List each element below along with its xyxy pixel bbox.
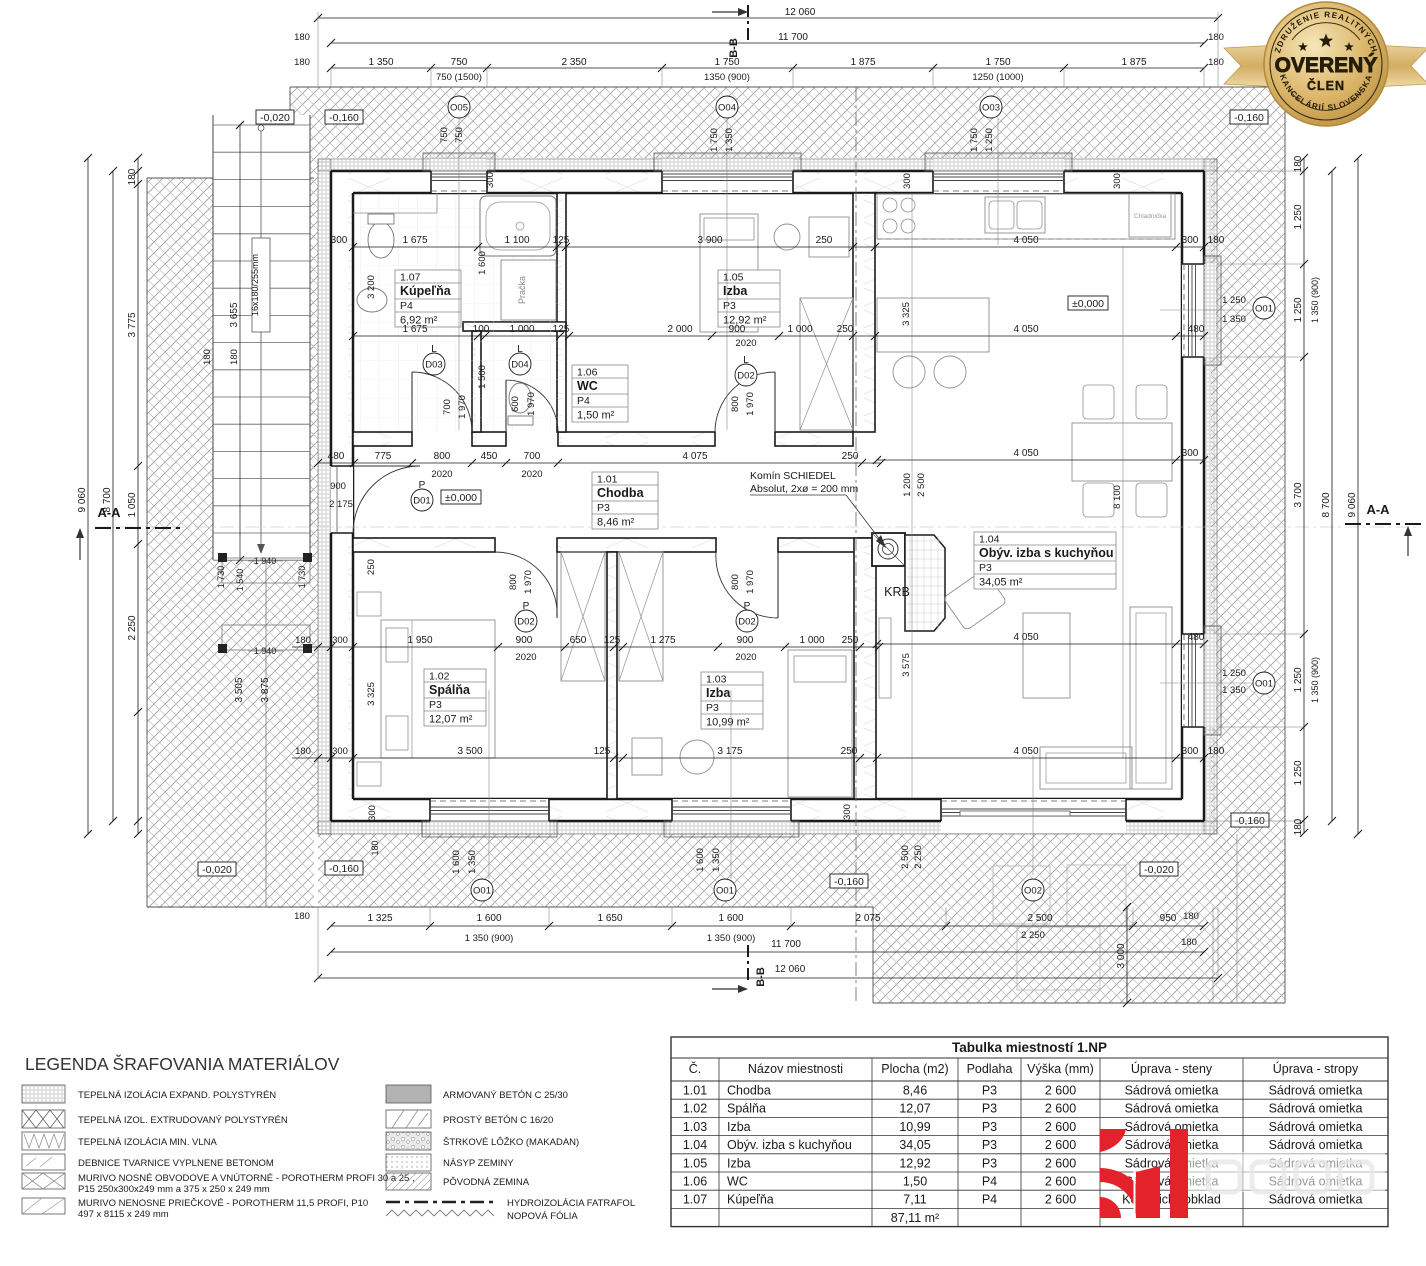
- svg-text:3 875: 3 875: [260, 677, 271, 702]
- svg-text:1 350 (900): 1 350 (900): [1310, 277, 1320, 323]
- svg-text:800: 800: [730, 574, 741, 590]
- svg-text:Sádrová omietka: Sádrová omietka: [1269, 1084, 1363, 1098]
- svg-text:3 575: 3 575: [901, 653, 912, 677]
- svg-text:A-A: A-A: [1366, 502, 1390, 517]
- svg-text:1 350: 1 350: [711, 848, 722, 872]
- svg-text:1 350: 1 350: [368, 57, 393, 68]
- svg-text:2 250: 2 250: [1021, 930, 1045, 941]
- svg-text:TEPELNÁ IZOL. EXTRUDOVANÝ POLY: TEPELNÁ IZOL. EXTRUDOVANÝ POLYSTYRÉN: [78, 1115, 288, 1126]
- svg-text:1 250: 1 250: [1293, 297, 1304, 322]
- svg-text:750: 750: [451, 57, 468, 68]
- svg-text:750: 750: [439, 127, 450, 143]
- svg-text:P15 250x300x249 mm a 375 x 25: P15 250x300x249 mm a 375 x 250 x 249 mm: [78, 1184, 270, 1195]
- svg-text:180: 180: [1208, 746, 1225, 757]
- svg-text:Izba: Izba: [727, 1156, 751, 1170]
- svg-text:B-B: B-B: [755, 967, 767, 987]
- svg-text:1 325: 1 325: [367, 913, 392, 924]
- svg-text:300: 300: [331, 235, 348, 246]
- svg-text:480: 480: [1188, 632, 1205, 643]
- svg-text:1 200: 1 200: [902, 473, 913, 497]
- svg-text:1 600: 1 600: [695, 848, 706, 872]
- svg-text:12,07: 12,07: [899, 1102, 930, 1116]
- svg-text:1 600: 1 600: [451, 850, 462, 874]
- svg-text:2 500: 2 500: [916, 473, 927, 497]
- svg-text:480: 480: [1188, 324, 1205, 335]
- svg-text:1.01: 1.01: [683, 1084, 707, 1098]
- svg-text:O02: O02: [1024, 886, 1042, 897]
- svg-text:3 000: 3 000: [1116, 943, 1127, 968]
- svg-text:Komín SCHIEDEL: Komín SCHIEDEL: [750, 470, 836, 482]
- svg-text:1 350: 1 350: [724, 128, 735, 152]
- svg-text:WC: WC: [577, 379, 598, 393]
- svg-text:Sádrová omietka: Sádrová omietka: [1269, 1102, 1363, 1116]
- svg-text:1 750: 1 750: [969, 128, 980, 152]
- svg-text:300: 300: [842, 804, 853, 820]
- svg-text:100: 100: [473, 324, 490, 335]
- svg-text:D03: D03: [425, 360, 442, 371]
- svg-text:700: 700: [442, 399, 453, 415]
- svg-text:87,11 m²: 87,11 m²: [891, 1211, 939, 1225]
- svg-text:180: 180: [294, 57, 310, 68]
- svg-text:1 275: 1 275: [650, 635, 675, 646]
- svg-text:WC: WC: [727, 1175, 748, 1189]
- svg-text:3 325: 3 325: [366, 682, 377, 706]
- svg-text:KRB: KRB: [884, 585, 910, 599]
- svg-text:7,11: 7,11: [903, 1193, 926, 1207]
- svg-text:1.05: 1.05: [683, 1156, 707, 1170]
- svg-text:Chladnička: Chladnička: [1134, 213, 1167, 220]
- svg-text:P3: P3: [429, 699, 442, 711]
- svg-text:1 050: 1 050: [127, 492, 138, 517]
- svg-text:300: 300: [1182, 746, 1199, 757]
- svg-text:1.02: 1.02: [683, 1102, 707, 1116]
- svg-text:ŠTRKOVÉ LÔŽKO (MAKADAN): ŠTRKOVÉ LÔŽKO (MAKADAN): [443, 1137, 579, 1148]
- svg-text:4 050: 4 050: [1013, 324, 1038, 335]
- svg-text:3 500: 3 500: [457, 746, 482, 757]
- svg-text:125: 125: [604, 635, 621, 646]
- svg-text:O04: O04: [718, 103, 736, 114]
- svg-text:700: 700: [524, 451, 541, 462]
- svg-text:300: 300: [332, 635, 348, 646]
- svg-text:300: 300: [902, 173, 913, 189]
- svg-text:180: 180: [127, 168, 138, 185]
- svg-text:4 075: 4 075: [682, 451, 707, 462]
- svg-text:3 505: 3 505: [234, 677, 245, 702]
- svg-text:P3: P3: [982, 1084, 997, 1098]
- svg-text:2 600: 2 600: [1045, 1138, 1076, 1152]
- svg-text:900: 900: [516, 635, 533, 646]
- svg-text:Podlaha: Podlaha: [967, 1062, 1013, 1076]
- svg-text:1 675: 1 675: [402, 235, 427, 246]
- svg-text:180: 180: [202, 349, 213, 365]
- svg-text:180: 180: [370, 840, 380, 855]
- svg-text:D02: D02: [517, 617, 534, 628]
- svg-text:Č.: Č.: [689, 1061, 702, 1076]
- svg-text:10,99: 10,99: [899, 1120, 930, 1134]
- svg-text:250: 250: [841, 746, 858, 757]
- svg-text:1 970: 1 970: [526, 392, 537, 416]
- svg-text:Spálňa: Spálňa: [727, 1102, 766, 1116]
- svg-text:3 900: 3 900: [697, 235, 722, 246]
- svg-text:2 600: 2 600: [1045, 1120, 1076, 1134]
- svg-text:1.06: 1.06: [683, 1175, 707, 1189]
- svg-text:2 600: 2 600: [1045, 1193, 1076, 1207]
- svg-text:Sádrová omietka: Sádrová omietka: [1269, 1193, 1363, 1207]
- svg-text:P3: P3: [597, 502, 610, 514]
- svg-text:900: 900: [330, 481, 346, 492]
- svg-text:P3: P3: [982, 1102, 997, 1116]
- svg-text:O05: O05: [450, 103, 468, 114]
- svg-text:8,46: 8,46: [903, 1084, 927, 1098]
- svg-text:450: 450: [481, 451, 498, 462]
- svg-text:1 750: 1 750: [985, 57, 1010, 68]
- svg-text:P3: P3: [982, 1120, 997, 1134]
- svg-text:D02: D02: [737, 371, 754, 382]
- svg-text:1 650: 1 650: [597, 913, 622, 924]
- svg-text:1250 (1000): 1250 (1000): [972, 72, 1023, 83]
- svg-text:1 540: 1 540: [235, 569, 245, 592]
- svg-text:1,50: 1,50: [903, 1175, 927, 1189]
- svg-text:180: 180: [294, 911, 310, 922]
- svg-text:B-B: B-B: [728, 38, 740, 58]
- svg-text:12 060: 12 060: [775, 964, 806, 975]
- svg-text:1,50 m²: 1,50 m²: [577, 410, 615, 422]
- svg-text:750 (1500): 750 (1500): [436, 72, 482, 83]
- svg-text:NÁSYP ZEMINY: NÁSYP ZEMINY: [443, 1158, 514, 1169]
- svg-text:1 875: 1 875: [850, 57, 875, 68]
- svg-text:775: 775: [375, 451, 392, 462]
- svg-text:8,46 m²: 8,46 m²: [597, 517, 635, 529]
- svg-text:O01: O01: [1255, 679, 1273, 690]
- svg-text:Sádrová omietka: Sádrová omietka: [1269, 1138, 1363, 1152]
- svg-text:8 100: 8 100: [1112, 485, 1123, 509]
- svg-text:1 250: 1 250: [984, 128, 995, 152]
- svg-text:180: 180: [1293, 818, 1304, 835]
- svg-text:TEPELNÁ IZOLÁCIA EXPAND. POLYS: TEPELNÁ IZOLÁCIA EXPAND. POLYSTYRÉN: [78, 1090, 276, 1101]
- svg-text:1 730: 1 730: [216, 566, 226, 589]
- svg-text:8 700: 8 700: [102, 487, 113, 512]
- svg-text:1 250: 1 250: [1222, 668, 1246, 679]
- svg-text:950: 950: [1160, 913, 1177, 924]
- svg-text:34,05 m²: 34,05 m²: [979, 577, 1023, 589]
- svg-text:1.01: 1.01: [597, 474, 618, 486]
- svg-text:P4: P4: [982, 1193, 997, 1207]
- svg-text:Obýv. izba s kuchyňou: Obýv. izba s kuchyňou: [727, 1138, 852, 1152]
- svg-text:1 500: 1 500: [477, 365, 488, 389]
- svg-text:480: 480: [328, 451, 345, 462]
- svg-text:300: 300: [367, 805, 378, 821]
- svg-text:±0,000: ±0,000: [445, 492, 477, 504]
- svg-text:Izba: Izba: [706, 686, 731, 700]
- svg-text:1.05: 1.05: [723, 272, 744, 284]
- svg-text:MURIVO NENOSNE PRIEČKOVÉ - POR: MURIVO NENOSNE PRIEČKOVÉ - POROTHERM 11,…: [78, 1198, 368, 1209]
- svg-text:-0,160: -0,160: [1234, 112, 1264, 124]
- svg-text:1 350: 1 350: [1222, 314, 1246, 325]
- svg-text:1 750: 1 750: [714, 57, 739, 68]
- svg-text:2 500: 2 500: [900, 845, 911, 869]
- svg-text:2 175: 2 175: [329, 499, 353, 510]
- svg-text:MURIVO NOSNÉ OBVODOVE A VNÚTOR: MURIVO NOSNÉ OBVODOVE A VNÚTORNÉ - POROT…: [78, 1173, 415, 1184]
- svg-text:125: 125: [553, 324, 570, 335]
- svg-text:10,99 m²: 10,99 m²: [706, 717, 750, 729]
- svg-text:1 970: 1 970: [745, 392, 756, 416]
- svg-text:-0,020: -0,020: [202, 864, 232, 876]
- svg-text:Kúpeľňa: Kúpeľňa: [727, 1193, 774, 1207]
- svg-text:1 970: 1 970: [457, 395, 468, 419]
- svg-text:2 250: 2 250: [127, 615, 138, 640]
- svg-text:Úprava - stropy: Úprava - stropy: [1273, 1061, 1359, 1076]
- svg-text:ARMOVANÝ BETÓN C 25/30: ARMOVANÝ BETÓN C 25/30: [443, 1090, 568, 1101]
- svg-text:1 350 (900): 1 350 (900): [1310, 657, 1320, 703]
- svg-text:3 775: 3 775: [127, 312, 138, 337]
- svg-text:650: 650: [570, 635, 587, 646]
- svg-text:O01: O01: [473, 886, 491, 897]
- svg-text:P3: P3: [982, 1156, 997, 1170]
- svg-text:2 350: 2 350: [561, 57, 586, 68]
- svg-text:P3: P3: [723, 300, 736, 312]
- svg-text:3 655: 3 655: [229, 302, 240, 327]
- svg-text:1 350: 1 350: [467, 850, 478, 874]
- svg-text:180: 180: [295, 635, 311, 646]
- svg-text:Sádrová omietka: Sádrová omietka: [1269, 1120, 1363, 1134]
- svg-text:OVERENÝ: OVERENÝ: [1275, 53, 1378, 77]
- svg-text:2020: 2020: [735, 652, 756, 663]
- svg-text:Plocha (m2): Plocha (m2): [881, 1062, 948, 1076]
- svg-text:2 000: 2 000: [667, 324, 692, 335]
- svg-text:-0,020: -0,020: [260, 112, 290, 124]
- svg-text:1350 (900): 1350 (900): [704, 72, 750, 83]
- svg-text:Sádrová omietka: Sádrová omietka: [1125, 1084, 1219, 1098]
- svg-text:1 730: 1 730: [297, 566, 307, 589]
- svg-text:180: 180: [1293, 155, 1304, 172]
- svg-text:2020: 2020: [431, 469, 452, 480]
- svg-text:Úprava - steny: Úprava - steny: [1131, 1061, 1213, 1076]
- svg-text:1 675: 1 675: [402, 324, 427, 335]
- svg-text:1 250: 1 250: [1293, 667, 1304, 692]
- svg-text:1 750: 1 750: [709, 128, 720, 152]
- svg-text:-0,160: -0,160: [329, 112, 359, 124]
- svg-text:D02: D02: [738, 617, 755, 628]
- svg-text:8 700: 8 700: [1321, 492, 1332, 517]
- svg-text:1 350 (900): 1 350 (900): [707, 933, 756, 944]
- svg-text:Chodba: Chodba: [597, 486, 645, 500]
- svg-text:1 000: 1 000: [509, 324, 534, 335]
- svg-text:1.06: 1.06: [577, 367, 598, 379]
- svg-text:Výška (mm): Výška (mm): [1027, 1062, 1094, 1076]
- svg-text:300: 300: [332, 746, 348, 757]
- svg-text:2 600: 2 600: [1045, 1175, 1076, 1189]
- svg-text:NOPOVÁ FÓLIA: NOPOVÁ FÓLIA: [507, 1211, 578, 1222]
- svg-text:Tabulka miestností 1.NP: Tabulka miestností 1.NP: [952, 1040, 1107, 1055]
- svg-text:180: 180: [1183, 911, 1199, 922]
- svg-text:600: 600: [510, 396, 521, 412]
- svg-text:1.02: 1.02: [429, 671, 450, 683]
- svg-text:Obýv. izba s kuchyňou: Obýv. izba s kuchyňou: [979, 546, 1114, 560]
- svg-text:180: 180: [1208, 57, 1224, 68]
- svg-text:1 250: 1 250: [1293, 760, 1304, 785]
- svg-text:O01: O01: [716, 886, 734, 897]
- svg-text:800: 800: [434, 451, 451, 462]
- svg-text:4 050: 4 050: [1013, 448, 1038, 459]
- svg-text:1.03: 1.03: [683, 1120, 707, 1134]
- svg-text:900: 900: [737, 635, 754, 646]
- svg-text:D01: D01: [413, 496, 430, 507]
- svg-text:2 600: 2 600: [1045, 1084, 1076, 1098]
- svg-text:180: 180: [1208, 32, 1224, 43]
- svg-text:125: 125: [553, 235, 570, 246]
- svg-text:300: 300: [1112, 173, 1123, 189]
- svg-text:1 600: 1 600: [476, 913, 501, 924]
- svg-text:2020: 2020: [515, 652, 536, 663]
- svg-text:1 970: 1 970: [745, 570, 756, 594]
- svg-text:LEGENDA ŠRAFOVANIA MATERIÁLOV: LEGENDA ŠRAFOVANIA MATERIÁLOV: [25, 1053, 340, 1074]
- svg-text:180: 180: [294, 32, 310, 43]
- svg-text:1 250: 1 250: [1222, 295, 1246, 306]
- svg-text:34,05: 34,05: [899, 1138, 930, 1152]
- svg-text:TEPELNÁ IZOLÁCIA MIN. VLNA: TEPELNÁ IZOLÁCIA MIN. VLNA: [78, 1137, 218, 1148]
- svg-text:P3: P3: [706, 702, 719, 714]
- svg-text:Absolut, 2xø = 200 mm: Absolut, 2xø = 200 mm: [750, 483, 859, 495]
- svg-text:1 875: 1 875: [1121, 57, 1146, 68]
- svg-text:2 500: 2 500: [1027, 913, 1052, 924]
- svg-text:2 250: 2 250: [913, 845, 924, 869]
- svg-text:Izba: Izba: [727, 1120, 751, 1134]
- svg-text:P4: P4: [400, 300, 413, 312]
- svg-text:1.07: 1.07: [683, 1193, 707, 1207]
- svg-text:4 050: 4 050: [1013, 235, 1038, 246]
- svg-text:-0,160: -0,160: [834, 876, 864, 888]
- svg-text:HYDROIZOLÁCIA FATRAFOL: HYDROIZOLÁCIA FATRAFOL: [507, 1198, 635, 1209]
- svg-text:12 060: 12 060: [785, 7, 816, 18]
- svg-text:1 100: 1 100: [504, 235, 529, 246]
- svg-text:3 700: 3 700: [1293, 482, 1304, 507]
- svg-text:180: 180: [295, 746, 311, 757]
- svg-text:P3: P3: [982, 1138, 997, 1152]
- svg-text:900: 900: [729, 324, 746, 335]
- svg-text:800: 800: [508, 574, 519, 590]
- svg-text:Chodba: Chodba: [727, 1084, 771, 1098]
- svg-text:250: 250: [366, 559, 377, 575]
- svg-text:1 600: 1 600: [477, 251, 488, 275]
- svg-text:1.04: 1.04: [683, 1138, 707, 1152]
- svg-text:2020: 2020: [521, 469, 542, 480]
- svg-text:250: 250: [842, 451, 859, 462]
- svg-text:1 950: 1 950: [407, 635, 432, 646]
- svg-text:1 000: 1 000: [787, 324, 812, 335]
- svg-text:9 060: 9 060: [77, 487, 88, 512]
- svg-text:4 050: 4 050: [1013, 632, 1038, 643]
- svg-text:180: 180: [229, 349, 240, 365]
- svg-text:300: 300: [1182, 448, 1199, 459]
- svg-text:Kúpeľňa: Kúpeľňa: [400, 284, 452, 298]
- svg-text:250: 250: [837, 324, 854, 335]
- svg-text:O03: O03: [982, 103, 1000, 114]
- svg-text:DEBNICE TVARNICE VYPLNENE BETO: DEBNICE TVARNICE VYPLNENE BETONOM: [78, 1158, 274, 1169]
- svg-text:PROSTÝ BETÓN C 16/20: PROSTÝ BETÓN C 16/20: [443, 1115, 553, 1126]
- svg-text:2 600: 2 600: [1045, 1156, 1076, 1170]
- svg-text:12,92: 12,92: [899, 1156, 930, 1170]
- svg-text:16x180/255mm: 16x180/255mm: [250, 254, 260, 316]
- svg-text:180: 180: [1181, 937, 1197, 948]
- svg-text:3 325: 3 325: [901, 302, 912, 326]
- svg-text:300: 300: [485, 172, 496, 188]
- svg-text:Sádrová omietka: Sádrová omietka: [1125, 1102, 1219, 1116]
- svg-text:250: 250: [842, 635, 859, 646]
- svg-text:1 600: 1 600: [718, 913, 743, 924]
- svg-text:125: 125: [594, 746, 611, 757]
- svg-text:-0,020: -0,020: [1144, 864, 1174, 876]
- svg-text:800: 800: [730, 396, 741, 412]
- svg-text:180: 180: [1208, 235, 1225, 246]
- svg-text:300: 300: [1182, 235, 1199, 246]
- svg-text:1 250: 1 250: [1293, 204, 1304, 229]
- svg-text:1 000: 1 000: [799, 635, 824, 646]
- svg-text:2020: 2020: [735, 338, 756, 349]
- svg-text:1 970: 1 970: [523, 570, 534, 594]
- svg-text:P4: P4: [577, 395, 590, 407]
- svg-text:1.03: 1.03: [706, 674, 727, 686]
- svg-text:2 075: 2 075: [855, 913, 880, 924]
- svg-text:Pračka: Pračka: [517, 276, 527, 304]
- svg-text:11 700: 11 700: [778, 32, 808, 43]
- svg-text:-0,160: -0,160: [329, 863, 359, 875]
- svg-text:12,07 m²: 12,07 m²: [429, 714, 473, 726]
- svg-text:1 350 (900): 1 350 (900): [465, 933, 514, 944]
- svg-text:497 x 8115 x 249 mm: 497 x 8115 x 249 mm: [78, 1209, 169, 1220]
- svg-text:O01: O01: [1255, 304, 1273, 315]
- svg-text:P3: P3: [979, 562, 992, 574]
- svg-text:Názov miestnosti: Názov miestnosti: [748, 1062, 843, 1076]
- svg-text:9 060: 9 060: [1347, 492, 1358, 517]
- svg-text:1 350: 1 350: [1222, 685, 1246, 696]
- svg-text:250: 250: [816, 235, 833, 246]
- svg-text:±0,000: ±0,000: [1072, 298, 1104, 310]
- svg-text:D04: D04: [511, 360, 528, 371]
- svg-text:2 600: 2 600: [1045, 1102, 1076, 1116]
- svg-text:1.07: 1.07: [400, 272, 421, 284]
- svg-text:Spálňa: Spálňa: [429, 683, 471, 697]
- svg-text:PÔVODNÁ ZEMINA: PÔVODNÁ ZEMINA: [443, 1177, 530, 1188]
- svg-text:750: 750: [454, 127, 465, 143]
- svg-text:ČLEN: ČLEN: [1307, 78, 1345, 93]
- svg-text:4 050: 4 050: [1013, 746, 1038, 757]
- svg-text:P4: P4: [982, 1175, 997, 1189]
- svg-text:1.04: 1.04: [979, 534, 1000, 546]
- svg-text:3 175: 3 175: [717, 746, 742, 757]
- svg-text:3 200: 3 200: [366, 275, 377, 299]
- svg-text:11 700: 11 700: [771, 939, 801, 950]
